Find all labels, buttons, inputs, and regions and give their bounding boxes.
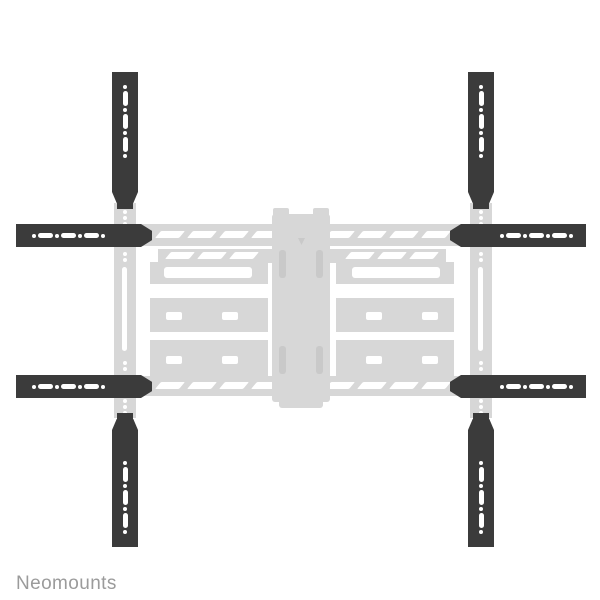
hole-dot	[569, 385, 573, 389]
bar-connector	[473, 203, 489, 209]
arm-slot	[352, 267, 440, 278]
rail-hole-dot	[479, 252, 483, 256]
hole-slot	[479, 91, 484, 106]
hole-dot	[123, 461, 127, 465]
bar-connector	[117, 413, 133, 419]
hole-dot	[55, 234, 59, 238]
rail-hole-dot	[123, 258, 127, 262]
rail-diagonal-slot	[377, 252, 407, 259]
arm-hook-cutout	[222, 356, 238, 364]
hole-slot	[529, 384, 544, 389]
hole-slot	[479, 137, 484, 152]
hole-dot	[123, 154, 127, 158]
rail-hole-dot	[123, 405, 127, 409]
rail-diagonal-slot	[389, 382, 419, 389]
mount-arm-upper-right	[336, 262, 454, 284]
rail-hole-dot	[479, 367, 483, 371]
hole-dot	[569, 234, 573, 238]
rail-hole-dot	[479, 361, 483, 365]
mount-arm-middle-left	[150, 298, 268, 332]
hole-slot	[84, 233, 99, 238]
hole-dot	[123, 85, 127, 89]
plate-top-tab	[273, 208, 289, 218]
plate-slot	[316, 250, 323, 278]
hole-slot	[479, 114, 484, 129]
rail-long-slot	[478, 267, 483, 351]
hole-dot	[123, 108, 127, 112]
vesa-hole-strip	[468, 85, 494, 158]
hole-slot	[552, 233, 567, 238]
rail-hole-dot	[123, 210, 127, 214]
arm-slot	[164, 267, 252, 278]
rail-diagonal-slot	[409, 252, 439, 259]
mount-arm-upper-left	[150, 262, 268, 284]
hole-dot	[123, 530, 127, 534]
rail-hole-dot	[123, 361, 127, 365]
arm-hook-cutout	[422, 312, 438, 320]
hole-slot	[84, 384, 99, 389]
faded-wall-mount	[0, 0, 600, 600]
hole-slot	[479, 490, 484, 505]
rail-diagonal-slot	[421, 382, 451, 389]
mount-arm-lower-right	[336, 340, 454, 376]
rail-diagonal-slot	[229, 252, 259, 259]
hole-dot	[479, 530, 483, 534]
arm-hook-cutout	[166, 312, 182, 320]
hole-dot	[479, 507, 483, 511]
arm-hook-cutout	[366, 356, 382, 364]
hole-slot	[38, 384, 53, 389]
rail-hole-dot	[479, 405, 483, 409]
extension-bar-right-top	[450, 224, 586, 247]
plate-top-tab	[313, 208, 329, 218]
rail-diagonal-slot	[155, 231, 185, 238]
rail-diagonal-slot	[219, 382, 249, 389]
mount-center-wall-plate	[272, 214, 330, 402]
hole-slot	[123, 91, 128, 106]
plate-bottom-foot	[279, 402, 323, 408]
mount-arm-middle-right	[336, 298, 454, 332]
hole-slot	[123, 137, 128, 152]
bar-connector	[117, 203, 133, 209]
hole-dot	[32, 385, 36, 389]
plate-slot	[279, 346, 286, 374]
vesa-hole-strip	[500, 375, 573, 398]
extension-bar-left-top	[16, 224, 152, 247]
hole-slot	[38, 233, 53, 238]
vesa-hole-strip	[32, 224, 105, 247]
hole-dot	[123, 484, 127, 488]
rail-diagonal-slot	[357, 231, 387, 238]
extension-bar-left-bottom	[16, 375, 152, 398]
hole-slot	[506, 384, 521, 389]
rail-diagonal-slot	[357, 382, 387, 389]
hole-dot	[123, 507, 127, 511]
rail-hole-dot	[479, 258, 483, 262]
hole-dot	[479, 85, 483, 89]
hole-dot	[123, 131, 127, 135]
hole-slot	[123, 490, 128, 505]
arm-hook-cutout	[422, 356, 438, 364]
hole-slot	[61, 384, 76, 389]
hole-slot	[506, 233, 521, 238]
plate-slot	[316, 346, 323, 374]
hole-dot	[479, 461, 483, 465]
hole-slot	[479, 513, 484, 528]
rail-hole-dot	[479, 399, 483, 403]
hole-dot	[32, 234, 36, 238]
product-image-canvas: Neomounts	[0, 0, 600, 600]
rail-hole-dot	[123, 367, 127, 371]
rail-long-slot	[122, 267, 127, 351]
hole-dot	[479, 154, 483, 158]
hole-dot	[523, 234, 527, 238]
rail-diagonal-slot	[187, 231, 217, 238]
hole-slot	[479, 467, 484, 482]
rail-diagonal-slot	[187, 382, 217, 389]
extension-bar-right-bottom	[450, 375, 586, 398]
hole-dot	[78, 385, 82, 389]
arm-hook-cutout	[222, 312, 238, 320]
vesa-hole-strip	[112, 461, 138, 534]
bar-connector	[473, 413, 489, 419]
brand-wordmark: Neomounts	[16, 573, 117, 595]
hole-dot	[479, 484, 483, 488]
rail-diagonal-slot	[197, 252, 227, 259]
hole-slot	[552, 384, 567, 389]
vesa-hole-strip	[468, 461, 494, 534]
hole-dot	[523, 385, 527, 389]
hole-dot	[55, 385, 59, 389]
plate-arrow-mark	[298, 238, 305, 245]
hole-dot	[546, 234, 550, 238]
hole-dot	[479, 131, 483, 135]
vesa-hole-strip	[500, 224, 573, 247]
vesa-hole-strip	[32, 375, 105, 398]
rail-hole-dot	[123, 216, 127, 220]
hole-dot	[546, 385, 550, 389]
rail-diagonal-slot	[389, 231, 419, 238]
rail-diagonal-slot	[421, 231, 451, 238]
hole-dot	[78, 234, 82, 238]
hole-dot	[101, 385, 105, 389]
hole-slot	[123, 114, 128, 129]
rail-diagonal-slot	[165, 252, 195, 259]
hole-dot	[101, 234, 105, 238]
rail-hole-dot	[479, 216, 483, 220]
hole-dot	[500, 234, 504, 238]
extension-bar-top-right	[468, 72, 494, 203]
hole-slot	[529, 233, 544, 238]
plate-slot	[279, 250, 286, 278]
arm-hook-cutout	[166, 356, 182, 364]
mount-arm-lower-left	[150, 340, 268, 376]
arm-hook-cutout	[366, 312, 382, 320]
hole-slot	[123, 467, 128, 482]
vesa-hole-strip	[112, 85, 138, 158]
rail-hole-dot	[123, 399, 127, 403]
hole-slot	[123, 513, 128, 528]
extension-bar-bottom-right	[468, 419, 494, 547]
rail-diagonal-slot	[219, 231, 249, 238]
hole-slot	[61, 233, 76, 238]
hole-dot	[479, 108, 483, 112]
hole-dot	[500, 385, 504, 389]
extension-bar-bottom-left	[112, 419, 138, 547]
rail-hole-dot	[479, 210, 483, 214]
rail-diagonal-slot	[345, 252, 375, 259]
extension-bar-top-left	[112, 72, 138, 203]
rail-diagonal-slot	[155, 382, 185, 389]
rail-hole-dot	[123, 252, 127, 256]
